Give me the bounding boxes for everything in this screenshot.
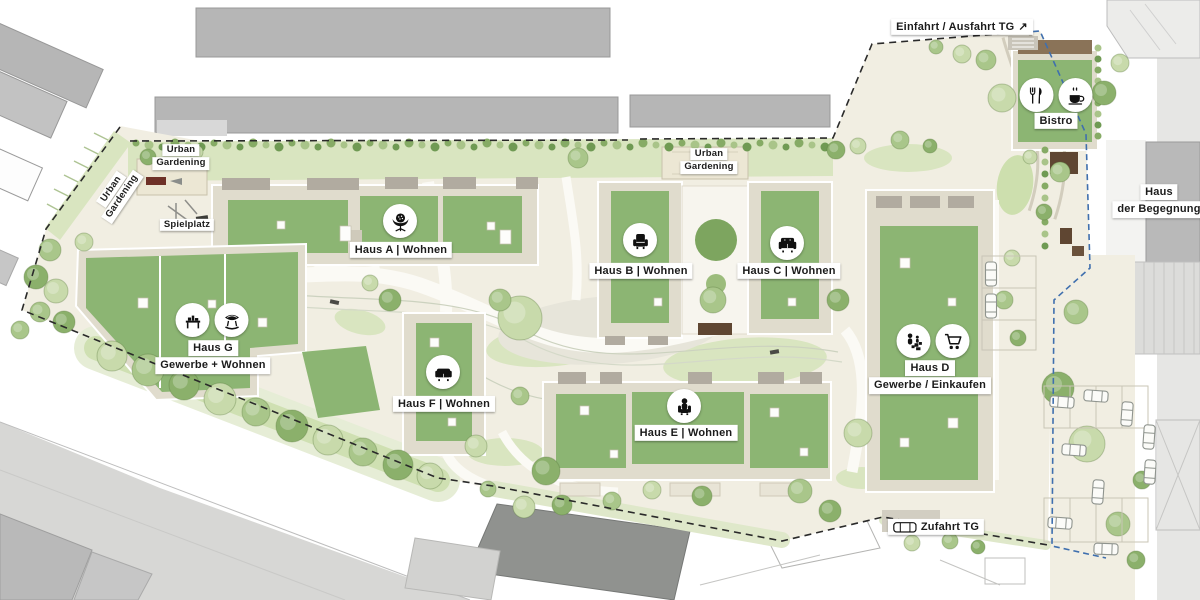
site-plan-canvas: UrbanGardeningUrbanGardeningSpielplatzUr…: [0, 0, 1200, 600]
car-outline: [1084, 390, 1109, 403]
car-outline: [1121, 402, 1134, 427]
car-outline: [986, 262, 997, 286]
car-outline: [986, 294, 997, 318]
car-outline: [1094, 543, 1118, 555]
car-outline: [1062, 444, 1087, 457]
car-outline: [1143, 425, 1156, 450]
car-outline: [1092, 480, 1105, 505]
site-plan-artwork: [0, 0, 1200, 600]
car-outline: [1048, 517, 1073, 530]
car-outline: [1144, 460, 1157, 485]
